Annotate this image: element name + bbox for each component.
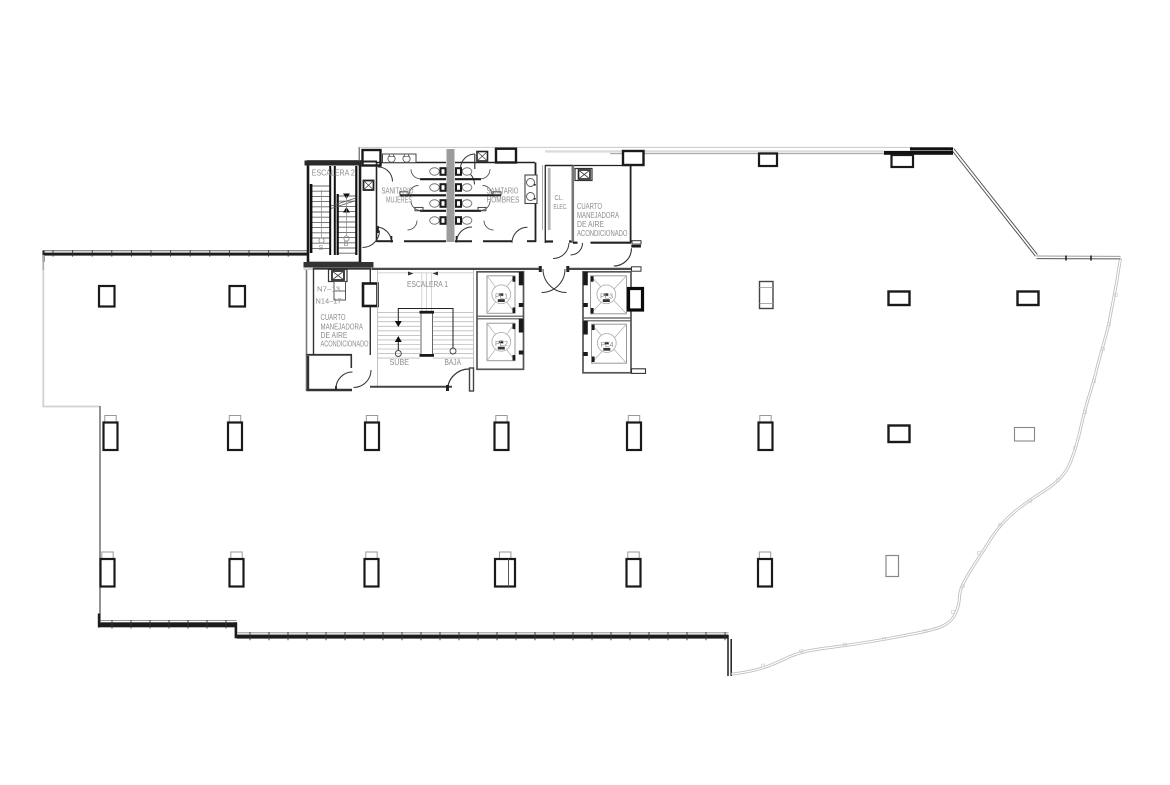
svg-text:ACONDICIONADO: ACONDICIONADO: [577, 229, 628, 238]
svg-text:BAJA: BAJA: [445, 357, 462, 367]
svg-text:HOMBRES: HOMBRES: [487, 195, 520, 205]
svg-text:ACONDICIONADO: ACONDICIONADO: [321, 340, 369, 349]
svg-text:ESCALERA 1: ESCALERA 1: [407, 279, 448, 289]
svg-text:PE4: PE4: [601, 342, 614, 349]
svg-text:N7–13: N7–13: [317, 285, 340, 294]
svg-text:PE1: PE1: [495, 293, 508, 300]
svg-text:CL.: CL.: [555, 193, 564, 202]
svg-text:S: S: [319, 243, 324, 252]
svg-text:PE2: PE2: [495, 341, 508, 348]
svg-text:N14–17: N14–17: [316, 297, 342, 306]
svg-text:DE AIRE: DE AIRE: [577, 220, 604, 229]
svg-text:CUARTO: CUARTO: [577, 202, 602, 211]
svg-text:ELEC.: ELEC.: [554, 202, 568, 211]
svg-text:B: B: [344, 239, 349, 248]
svg-text:MUJERES: MUJERES: [386, 195, 412, 205]
svg-text:ESCALERA 2: ESCALERA 2: [312, 169, 355, 178]
svg-text:PE3: PE3: [600, 293, 613, 300]
svg-text:MANEJADORA: MANEJADORA: [577, 211, 620, 220]
svg-text:SUBE: SUBE: [390, 357, 410, 367]
svg-text:CUARTO: CUARTO: [321, 313, 346, 322]
